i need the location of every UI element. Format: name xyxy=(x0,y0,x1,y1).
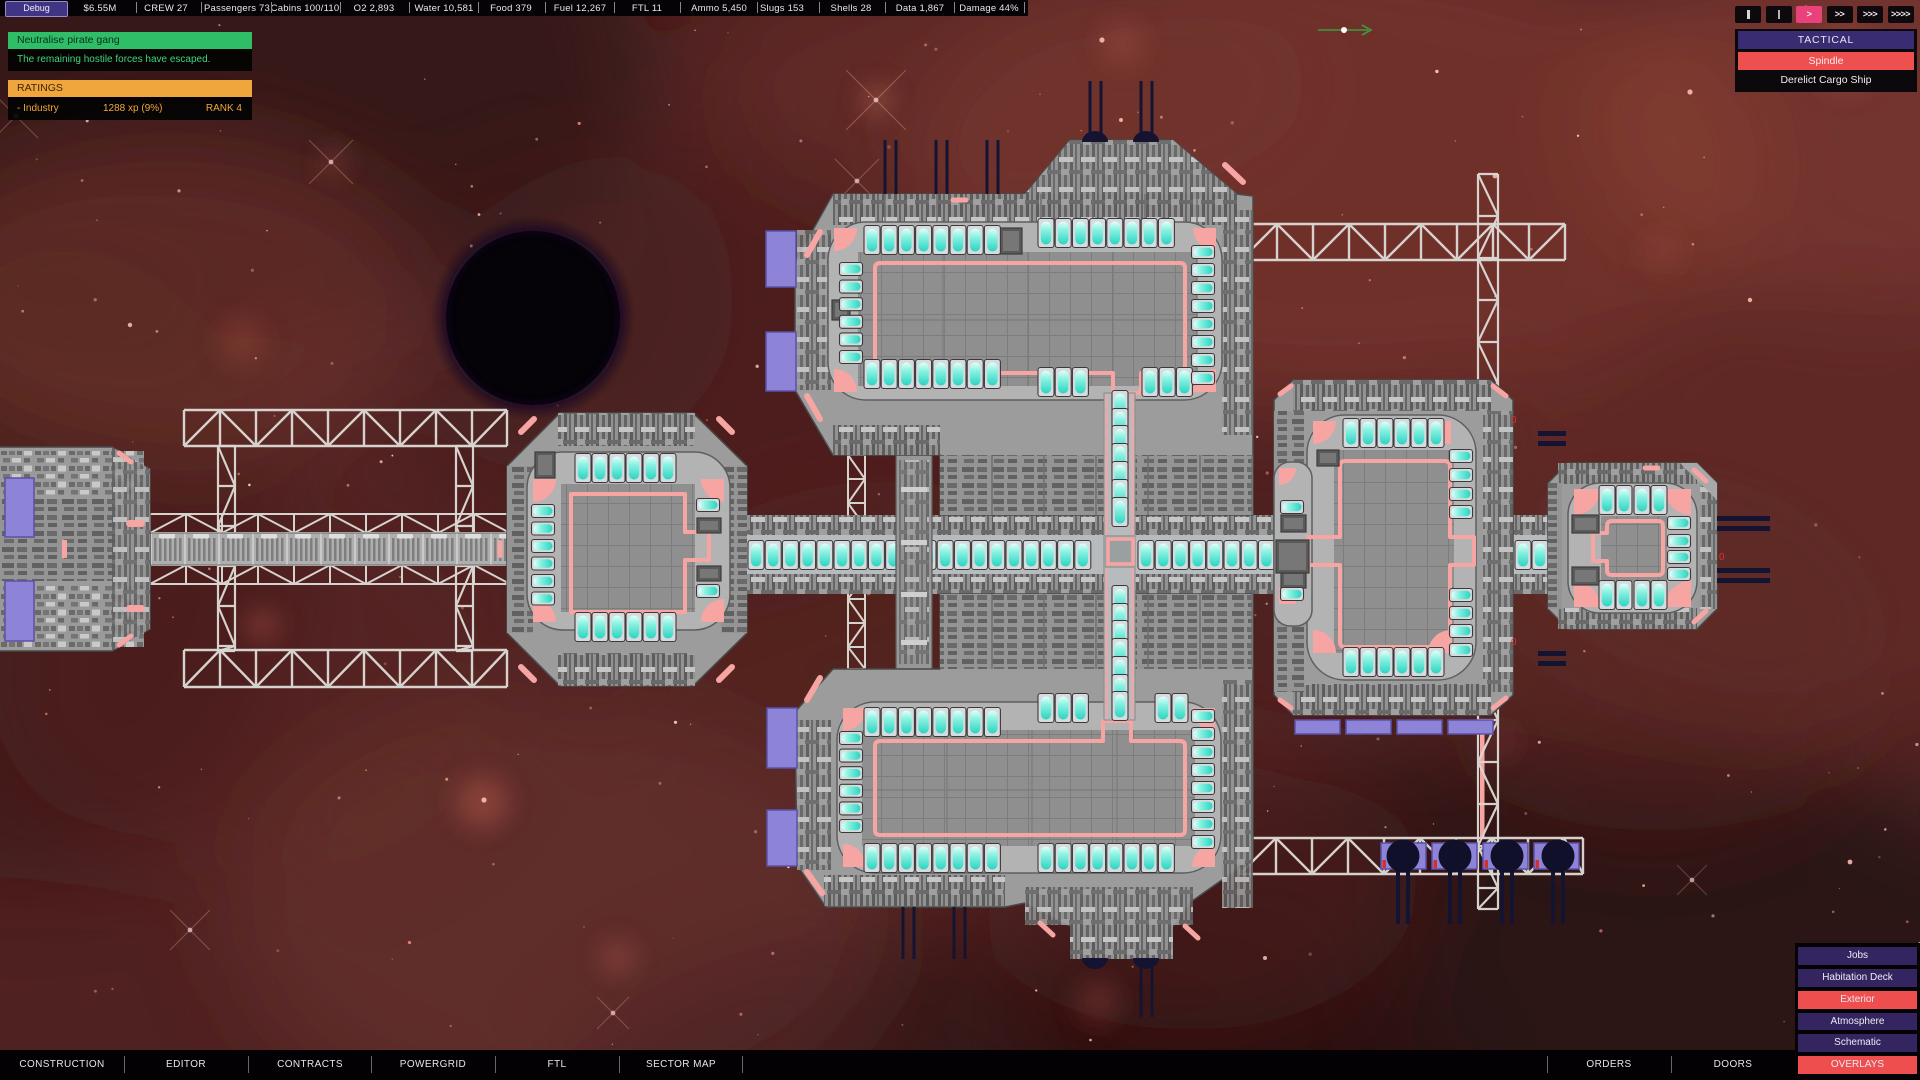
svg-text:0: 0 xyxy=(1719,552,1725,563)
svg-text:0: 0 xyxy=(1511,415,1517,426)
svg-text:0: 0 xyxy=(1511,637,1517,648)
